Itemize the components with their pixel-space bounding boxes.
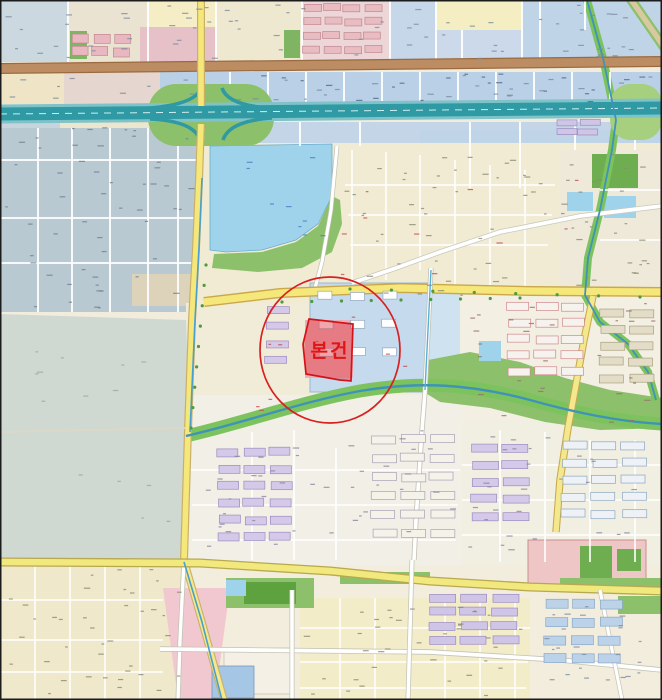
map-text-mark xyxy=(220,524,225,525)
map-text-mark xyxy=(92,50,96,51)
building xyxy=(493,594,519,602)
map-text-mark xyxy=(626,310,632,311)
map-text-mark xyxy=(606,679,610,680)
map-text-mark xyxy=(623,17,628,18)
map-text-mark xyxy=(282,77,286,78)
street-tree xyxy=(197,345,200,348)
map-text-mark xyxy=(87,129,92,130)
map-text-mark xyxy=(463,75,466,76)
map-text-mark xyxy=(137,209,143,210)
map-text-mark xyxy=(501,51,504,52)
map-text-mark xyxy=(559,479,562,480)
map-text-mark xyxy=(410,608,415,609)
map-text-mark xyxy=(274,99,279,100)
building xyxy=(431,530,455,538)
district-terminal xyxy=(132,274,194,306)
map-text-mark xyxy=(47,275,53,276)
street-tree xyxy=(191,406,194,409)
airfield-area xyxy=(0,314,190,562)
map-text-mark xyxy=(303,234,307,235)
map-text-mark xyxy=(616,320,619,321)
map-text-mark xyxy=(624,168,627,169)
map-text-mark xyxy=(468,157,473,158)
building xyxy=(431,435,455,443)
map-text-mark xyxy=(37,53,43,54)
building xyxy=(350,292,364,300)
district-top-yellow2 xyxy=(436,0,522,30)
building xyxy=(318,291,332,299)
building xyxy=(218,533,239,541)
map-text-mark xyxy=(415,9,421,10)
map-text-mark xyxy=(285,80,288,81)
map-text-mark xyxy=(82,269,86,270)
map-text-mark xyxy=(167,5,171,6)
map-text-mark xyxy=(169,25,175,26)
map-text-mark xyxy=(458,624,464,625)
building xyxy=(535,367,557,375)
map-text-mark xyxy=(502,277,507,278)
map-text-mark xyxy=(498,74,503,75)
building xyxy=(507,302,529,310)
map-text-mark xyxy=(426,235,432,236)
building xyxy=(503,478,529,486)
map-text-mark xyxy=(399,438,405,439)
map-text-mark xyxy=(373,98,378,99)
map-text-mark xyxy=(317,90,322,91)
map-canvas[interactable]: 본건 xyxy=(0,0,662,700)
street-tree xyxy=(195,365,198,368)
building xyxy=(629,342,653,350)
map-text-mark xyxy=(94,171,99,172)
map-text-mark xyxy=(433,187,437,188)
map-text-mark xyxy=(519,629,522,630)
map-text-mark xyxy=(548,79,553,80)
building xyxy=(544,636,566,645)
building xyxy=(400,453,424,461)
map-text-mark xyxy=(607,48,610,49)
map-text-mark xyxy=(139,674,144,675)
map-text-mark xyxy=(403,366,407,367)
map-text-mark xyxy=(107,640,113,641)
map-text-mark xyxy=(30,262,36,263)
building xyxy=(563,441,587,449)
street-tree xyxy=(193,386,196,389)
map-text-mark xyxy=(470,318,475,319)
map-text-mark xyxy=(226,531,232,532)
map-text-mark xyxy=(496,242,502,243)
map-text-mark xyxy=(617,534,621,535)
map-text-mark xyxy=(118,679,123,680)
map-text-mark xyxy=(544,638,549,639)
map-text-mark xyxy=(473,330,479,331)
map-text-mark xyxy=(259,410,264,411)
building xyxy=(72,34,88,43)
building xyxy=(591,475,615,483)
map-text-mark xyxy=(642,260,647,261)
map-text-mark xyxy=(482,174,488,175)
map-text-mark xyxy=(280,482,286,483)
map-text-mark xyxy=(424,36,428,37)
map-text-mark xyxy=(488,22,493,23)
map-text-mark xyxy=(341,274,344,275)
map-text-mark xyxy=(268,344,271,345)
street-tree xyxy=(280,300,283,303)
map-text-mark xyxy=(464,74,468,75)
map-text-mark xyxy=(578,45,584,46)
map-text-mark xyxy=(324,94,327,95)
building xyxy=(219,465,240,473)
map-text-mark xyxy=(173,293,179,294)
map-text-mark xyxy=(503,449,508,450)
building xyxy=(593,459,617,467)
map-text-mark xyxy=(446,96,452,97)
map-text-mark xyxy=(229,498,232,499)
street-tree xyxy=(459,297,462,300)
map-text-mark xyxy=(223,513,226,514)
map-text-mark xyxy=(10,96,16,97)
map-text-mark xyxy=(496,82,502,83)
building xyxy=(502,461,528,469)
road-green-strip-3 xyxy=(618,596,662,614)
map-text-mark xyxy=(386,354,390,355)
map-text-mark xyxy=(516,511,521,512)
building xyxy=(429,472,453,480)
map-text-mark xyxy=(407,27,412,28)
map-text-mark xyxy=(186,138,189,139)
building xyxy=(217,449,238,457)
map-text-mark xyxy=(83,395,88,396)
building xyxy=(351,348,365,356)
map-text-mark xyxy=(225,10,230,11)
map-text-mark xyxy=(15,48,18,49)
map-text-mark xyxy=(566,180,570,181)
map-text-mark xyxy=(127,38,132,39)
map-text-mark xyxy=(354,54,358,55)
map-text-mark xyxy=(639,264,642,265)
map-text-mark xyxy=(35,351,38,352)
map-text-mark xyxy=(484,660,487,661)
map-text-mark xyxy=(361,215,364,216)
map-text-mark xyxy=(151,609,157,610)
map-text-mark xyxy=(65,646,68,647)
building xyxy=(343,5,360,12)
map-text-mark xyxy=(509,88,513,89)
building xyxy=(460,636,486,644)
building xyxy=(401,510,425,518)
map-text-mark xyxy=(359,39,364,40)
map-text-mark xyxy=(274,544,278,545)
map-text-mark xyxy=(28,224,33,225)
map-text-mark xyxy=(93,276,99,277)
map-text-mark xyxy=(279,49,283,50)
map-text-mark xyxy=(524,176,530,177)
map-text-mark xyxy=(611,154,614,155)
map-text-mark xyxy=(360,471,364,472)
map-text-mark xyxy=(351,487,354,488)
map-text-mark xyxy=(310,157,315,158)
map-text-mark xyxy=(498,668,502,669)
building xyxy=(622,458,646,466)
map-text-mark xyxy=(490,436,495,437)
building xyxy=(630,374,654,382)
building xyxy=(536,302,558,310)
street-tree xyxy=(473,291,476,294)
map-text-mark xyxy=(624,79,630,80)
map-text-mark xyxy=(322,678,326,679)
map-text-mark xyxy=(304,636,310,637)
map-text-mark xyxy=(190,93,194,94)
map-text-mark xyxy=(121,364,124,365)
map-text-mark xyxy=(607,13,612,14)
map-text-mark xyxy=(592,461,596,462)
street-tree xyxy=(370,299,373,302)
building xyxy=(561,509,585,517)
map-text-mark xyxy=(101,193,106,194)
map-text-mark xyxy=(486,637,491,638)
map-text-mark xyxy=(303,220,307,221)
building xyxy=(628,358,652,366)
map-text-mark xyxy=(329,532,333,533)
building xyxy=(630,326,654,334)
map-text-mark xyxy=(406,531,411,532)
map-text-mark xyxy=(620,191,624,192)
map-text-mark xyxy=(129,665,133,666)
map-text-mark xyxy=(598,54,604,55)
map-text-mark xyxy=(420,430,423,431)
map-text-mark xyxy=(590,459,593,460)
map-text-mark xyxy=(256,406,260,407)
map-text-mark xyxy=(552,649,555,650)
map-text-mark xyxy=(34,306,37,307)
building xyxy=(365,45,382,52)
map-text-mark xyxy=(473,507,478,508)
building xyxy=(473,461,499,469)
map-text-mark xyxy=(366,191,369,192)
building xyxy=(344,33,361,40)
map-text-mark xyxy=(432,273,437,274)
park-square-right xyxy=(592,154,638,188)
building xyxy=(601,325,625,333)
map-text-mark xyxy=(96,290,102,291)
map-text-mark xyxy=(380,21,383,22)
map-text-mark xyxy=(57,172,62,173)
building xyxy=(561,336,583,344)
map-text-mark xyxy=(42,401,46,402)
map-text-mark xyxy=(428,94,434,95)
map-text-mark xyxy=(578,192,582,193)
map-text-mark xyxy=(478,343,482,344)
map-text-mark xyxy=(165,635,171,636)
map-text-mark xyxy=(258,457,263,458)
map-text-mark xyxy=(574,646,580,647)
building xyxy=(546,618,568,627)
map-text-mark xyxy=(354,679,359,680)
map-text-mark xyxy=(173,208,177,209)
map-text-mark xyxy=(493,94,498,95)
map-text-mark xyxy=(460,295,463,296)
building xyxy=(270,499,291,507)
map-text-mark xyxy=(530,307,535,308)
map-text-mark xyxy=(529,323,534,324)
map-text-mark xyxy=(275,5,280,6)
pond-center xyxy=(479,341,501,361)
map-text-mark xyxy=(217,478,222,479)
map-text-mark xyxy=(375,627,380,628)
map-text-mark xyxy=(253,98,259,99)
map-text-mark xyxy=(592,280,597,281)
building xyxy=(265,356,287,363)
building xyxy=(557,120,577,126)
building xyxy=(600,600,622,609)
map-text-mark xyxy=(270,470,275,471)
map-text-mark xyxy=(454,170,457,171)
map-text-mark xyxy=(418,293,422,294)
building xyxy=(373,529,397,537)
map-text-mark xyxy=(301,80,304,81)
map-text-mark xyxy=(236,99,241,100)
pond-right-1 xyxy=(567,192,593,211)
map-text-mark xyxy=(579,668,582,669)
map-text-mark xyxy=(143,184,146,185)
building xyxy=(304,18,321,25)
street-tree xyxy=(399,298,402,301)
map-text-mark xyxy=(397,263,400,264)
building xyxy=(345,47,362,54)
map-text-mark xyxy=(98,654,103,655)
map-text-mark xyxy=(53,98,59,99)
map-text-mark xyxy=(136,276,139,277)
map-text-mark xyxy=(510,160,516,161)
map-text-mark xyxy=(10,664,13,665)
building xyxy=(430,607,456,615)
campus-field-2 xyxy=(617,549,641,571)
map-text-mark xyxy=(492,51,497,52)
building xyxy=(218,481,239,489)
map-text-mark xyxy=(65,24,69,25)
map-text-mark xyxy=(586,482,590,483)
map-text-mark xyxy=(384,292,389,293)
building xyxy=(305,4,322,11)
map-text-mark xyxy=(345,191,350,192)
building xyxy=(363,32,380,39)
map-text-mark xyxy=(84,588,90,589)
map-text-mark xyxy=(363,650,369,651)
map-text-mark xyxy=(625,676,630,677)
map-text-mark xyxy=(293,447,299,448)
map-text-mark xyxy=(468,546,472,547)
map-text-mark xyxy=(590,226,593,227)
building xyxy=(503,513,529,521)
map-text-mark xyxy=(417,642,422,643)
map-text-mark xyxy=(196,9,202,10)
building xyxy=(462,622,488,630)
building xyxy=(219,499,240,507)
map-text-mark xyxy=(9,598,13,599)
building xyxy=(431,492,455,500)
map-viewport[interactable]: 본건 xyxy=(0,0,662,700)
map-text-mark xyxy=(598,355,602,356)
building xyxy=(621,442,645,450)
map-text-mark xyxy=(411,449,415,450)
map-text-mark xyxy=(651,320,655,321)
map-text-mark xyxy=(130,592,134,593)
map-text-mark xyxy=(151,183,157,184)
map-text-mark xyxy=(97,237,102,238)
street-tree xyxy=(514,292,517,295)
map-text-mark xyxy=(145,221,148,222)
map-text-mark xyxy=(609,422,614,423)
building xyxy=(621,475,645,483)
map-text-mark xyxy=(147,485,151,486)
map-text-mark xyxy=(157,690,162,691)
map-text-mark xyxy=(270,203,274,204)
building xyxy=(371,510,395,518)
map-text-mark xyxy=(54,46,58,47)
map-text-mark xyxy=(447,681,451,682)
map-text-mark xyxy=(648,76,652,77)
street-tree xyxy=(390,289,393,292)
street-tree xyxy=(204,263,207,266)
map-text-mark xyxy=(292,530,295,531)
building xyxy=(591,511,615,519)
map-text-mark xyxy=(633,383,636,384)
district-band2-yellow xyxy=(0,72,64,104)
street-tree xyxy=(348,287,351,290)
building xyxy=(430,636,456,644)
building xyxy=(303,46,320,53)
map-text-mark xyxy=(427,285,432,286)
park-small-2 xyxy=(284,30,300,58)
map-text-mark xyxy=(404,173,407,174)
building xyxy=(492,608,518,616)
map-text-mark xyxy=(561,213,564,214)
map-text-mark xyxy=(484,695,488,696)
map-text-mark xyxy=(360,612,364,613)
map-text-mark xyxy=(556,23,559,24)
building xyxy=(244,532,265,540)
map-text-mark xyxy=(502,415,507,416)
map-text-mark xyxy=(141,611,144,612)
map-text-mark xyxy=(97,145,103,146)
map-text-mark xyxy=(39,147,42,148)
map-text-mark xyxy=(246,168,249,169)
map-text-mark xyxy=(482,76,485,77)
map-text-mark xyxy=(61,357,64,358)
building xyxy=(563,459,587,467)
map-text-mark xyxy=(577,456,582,457)
map-text-mark xyxy=(501,545,505,546)
map-text-mark xyxy=(298,226,301,227)
map-text-mark xyxy=(616,393,622,394)
map-text-mark xyxy=(19,142,25,143)
building xyxy=(493,636,519,644)
map-text-mark xyxy=(409,224,415,225)
map-text-mark xyxy=(540,388,544,389)
map-text-mark xyxy=(437,175,440,176)
map-text-mark xyxy=(629,420,634,421)
building xyxy=(572,618,594,627)
building xyxy=(371,436,395,444)
map-text-mark xyxy=(301,8,305,9)
map-text-mark xyxy=(392,86,395,87)
map-text-mark xyxy=(637,672,640,673)
street-tree xyxy=(429,298,432,301)
map-text-mark xyxy=(363,217,367,218)
map-text-mark xyxy=(543,360,548,361)
map-text-mark xyxy=(494,45,498,46)
building xyxy=(269,447,290,455)
street-tree xyxy=(556,293,559,296)
